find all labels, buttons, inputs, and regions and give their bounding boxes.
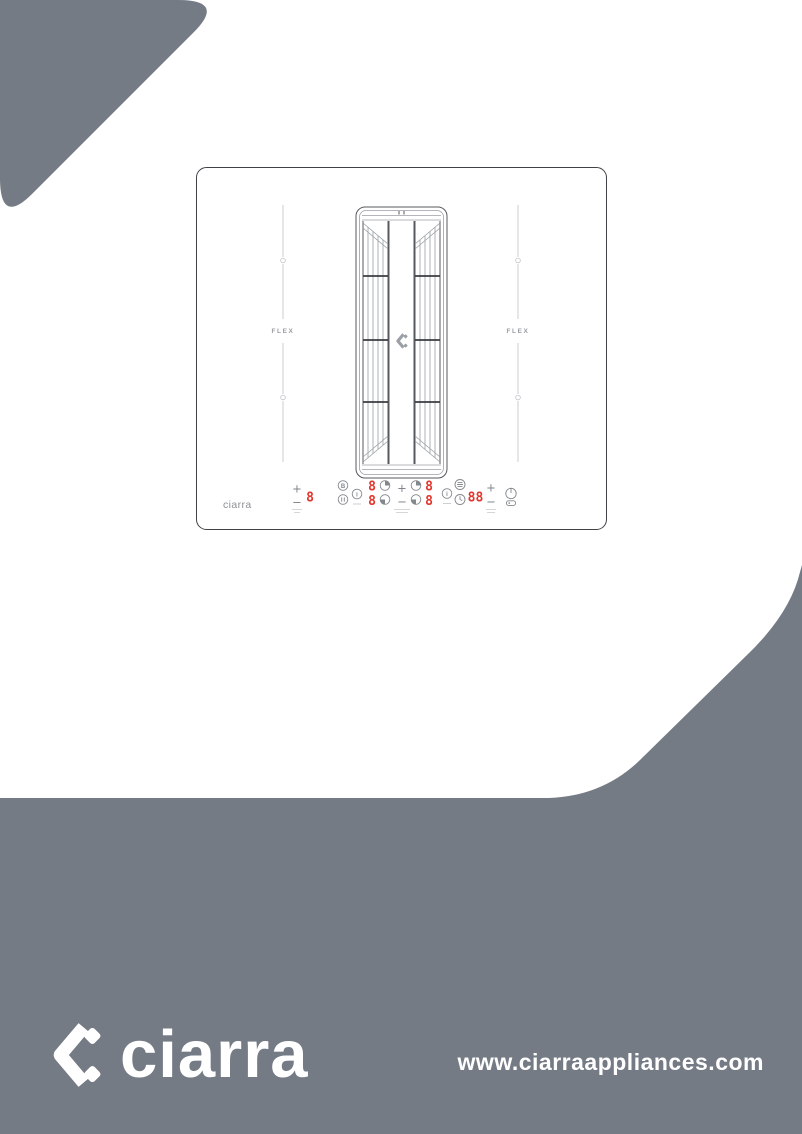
display-left-bottom: 8 [368, 494, 376, 509]
hob-brand-label: ciarra [223, 499, 252, 511]
hob-glass-outline [197, 168, 607, 530]
flex-right-label: FLEX [506, 328, 529, 335]
footer-logo-text: ciarra [120, 1016, 309, 1093]
minus-key: − [397, 495, 407, 509]
timer-display: 88 [468, 491, 484, 506]
display-right-top: 8 [425, 480, 433, 495]
plus-key: + [292, 482, 302, 496]
display-left-top: 8 [368, 480, 376, 495]
plus-key: + [397, 481, 407, 495]
hob-illustration: FLEX FLEX [196, 167, 607, 535]
minus-key: − [486, 495, 496, 509]
footer-logo: ciarra [46, 1016, 309, 1093]
display-right-bottom: 8 [425, 494, 433, 509]
boost-glyph: B [341, 484, 346, 490]
ciarra-icon [46, 1022, 104, 1088]
flex-left-label: FLEX [271, 328, 294, 335]
minus-key: − [292, 495, 302, 509]
plus-key: + [486, 481, 496, 495]
website-url: www.ciarraappliances.com [458, 1049, 764, 1076]
zone-left-display: 8 [306, 491, 314, 506]
manual-cover-page: FLEX FLEX [0, 0, 802, 1134]
top-left-diagonal-shape [0, 0, 207, 207]
